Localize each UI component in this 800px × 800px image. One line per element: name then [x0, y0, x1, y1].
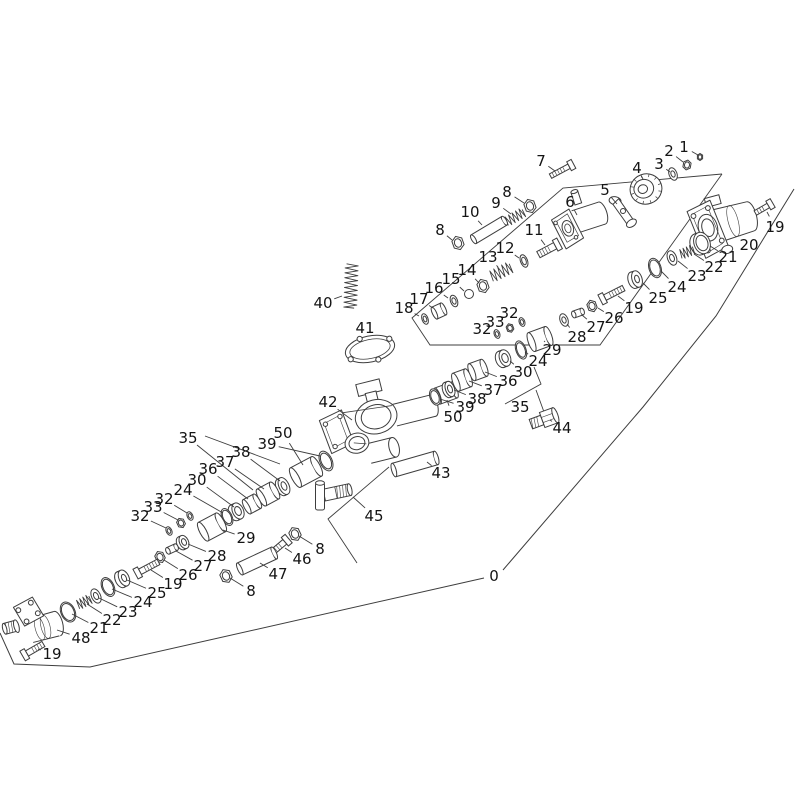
part-nut-1 — [697, 154, 702, 161]
callout-label-25: 25 — [648, 289, 667, 307]
part-oring-16 — [449, 294, 460, 308]
callout-label-44: 44 — [552, 419, 571, 437]
callout-label-46: 46 — [292, 550, 311, 568]
callout-label-13: 13 — [478, 248, 497, 266]
leader-line-23 — [678, 261, 688, 269]
leader-line-14 — [475, 279, 479, 283]
diagram-canvas: 1234567891081112131415161718404142201921… — [0, 0, 800, 800]
part-nut-8b — [451, 235, 466, 252]
callout-label-7: 7 — [536, 152, 546, 170]
leader-line-33 — [164, 513, 178, 520]
part-bolt-19a — [753, 199, 775, 218]
callout-label-10: 10 — [460, 203, 479, 221]
callout-label-2: 2 — [664, 142, 674, 160]
part-seat-14 — [476, 278, 491, 295]
leader-line-32 — [174, 505, 187, 513]
callout-label-19: 19 — [765, 218, 784, 236]
part-bolt-19b — [598, 283, 626, 305]
part-oring-32a — [518, 317, 526, 327]
callout-label-5: 5 — [600, 181, 610, 199]
leader-line-36 — [218, 476, 248, 499]
leader-line-19 — [618, 296, 624, 301]
callout-label-24: 24 — [667, 278, 686, 296]
leader-line-23 — [99, 598, 117, 607]
part-oring-32c — [186, 511, 195, 522]
leader-line-25 — [127, 580, 146, 588]
callout-label-32: 32 — [130, 507, 149, 525]
part-spring-40 — [344, 264, 359, 308]
leader-line-7 — [548, 166, 555, 171]
part-bolt-19c — [133, 557, 161, 579]
leader-line-8 — [515, 197, 524, 203]
callout-label-26: 26 — [604, 309, 623, 327]
exploded-parts-diagram: 1234567891081112131415161718404142201921… — [0, 0, 800, 800]
callout-label-18: 18 — [394, 299, 413, 317]
part-nut-33a — [505, 323, 514, 334]
callout-label-41: 41 — [355, 319, 374, 337]
leader-lines-layer — [38, 151, 769, 649]
leader-line-8 — [230, 578, 243, 586]
callout-label-39: 39 — [257, 435, 276, 453]
callout-label-20: 20 — [739, 236, 758, 254]
part-nut-33b — [176, 517, 187, 529]
leader-line-1 — [692, 151, 698, 155]
part-washer-23a — [665, 249, 679, 266]
part-spring-22L — [75, 594, 92, 609]
callout-label-29: 29 — [236, 529, 255, 547]
callout-label-21: 21 — [89, 619, 108, 637]
part-oring-24b — [513, 339, 529, 360]
part-screw-7 — [548, 159, 576, 180]
callout-label-35: 35 — [178, 429, 197, 447]
leader-line-8 — [299, 536, 312, 544]
callout-label-19: 19 — [42, 645, 61, 663]
leader-line-19 — [767, 212, 769, 216]
leader-line-30 — [207, 487, 234, 507]
callout-label-9: 9 — [491, 194, 501, 212]
callout-label-48: 48 — [71, 629, 90, 647]
callout-label-43: 43 — [431, 464, 450, 482]
part-manifold-48 — [0, 591, 66, 650]
callout-label-12: 12 — [495, 239, 514, 257]
callout-label-40: 40 — [313, 294, 332, 312]
callout-label-8: 8 — [502, 183, 512, 201]
callout-label-50: 50 — [443, 408, 462, 426]
leader-line-22 — [87, 604, 102, 614]
callout-label-27: 27 — [586, 318, 605, 336]
parts-layer — [0, 154, 775, 661]
callout-label-42: 42 — [318, 393, 337, 411]
leader-line-26 — [164, 560, 178, 569]
callout-label-35: 35 — [510, 398, 529, 416]
part-spring-22a — [679, 245, 696, 260]
group-bracket-line — [536, 390, 544, 412]
leader-line-16 — [444, 295, 448, 298]
part-seat-17 — [430, 302, 448, 320]
leader-line-9 — [503, 208, 511, 214]
part-nut-2 — [682, 159, 691, 170]
boundary-line — [0, 578, 484, 667]
part-washer-25L — [112, 568, 132, 589]
leader-line-19 — [151, 570, 163, 578]
callout-label-23: 23 — [687, 267, 706, 285]
part-pin-27a — [571, 307, 586, 318]
part-oring-18 — [420, 313, 429, 325]
callout-label-4: 4 — [632, 159, 642, 177]
callout-label-47: 47 — [268, 565, 287, 583]
part-washer-3 — [667, 167, 679, 182]
leader-line-32 — [519, 319, 520, 320]
leader-line-2 — [676, 157, 683, 162]
part-elbow-45 — [316, 481, 354, 510]
part-oring-32d — [165, 526, 174, 537]
leader-line-45 — [353, 497, 365, 508]
callout-label-1: 1 — [679, 138, 689, 156]
callout-label-45: 45 — [364, 507, 383, 525]
leader-line-12 — [515, 255, 519, 258]
part-pin-27L — [165, 543, 180, 555]
leader-line-50 — [289, 443, 303, 465]
part-ring-30a — [493, 348, 513, 369]
leader-line-28 — [188, 544, 206, 551]
leader-line-32 — [151, 521, 166, 528]
callout-label-19: 19 — [624, 299, 643, 317]
leader-line-24 — [193, 496, 223, 513]
callout-label-37: 37 — [215, 453, 234, 471]
leader-line-8 — [447, 236, 452, 240]
callout-label-15: 15 — [441, 270, 460, 288]
part-nut-8d — [218, 567, 233, 584]
callout-label-22: 22 — [704, 258, 723, 276]
callout-label-28: 28 — [567, 328, 586, 346]
callout-label-24: 24 — [173, 481, 192, 499]
callout-label-0: 0 — [489, 567, 499, 585]
callout-label-8: 8 — [246, 582, 256, 600]
leader-line-10 — [478, 221, 482, 225]
leader-line-26 — [598, 308, 604, 312]
callout-label-3: 3 — [654, 155, 664, 173]
leader-line-46 — [285, 548, 292, 552]
callout-label-8: 8 — [315, 540, 325, 558]
callout-label-32: 32 — [472, 320, 491, 338]
leader-line-11 — [541, 240, 545, 245]
part-valve-11 — [536, 238, 563, 260]
part-ball-15 — [465, 290, 474, 299]
callout-label-6: 6 — [565, 193, 575, 211]
part-oring-12 — [518, 254, 529, 269]
part-nut-26a — [586, 299, 598, 313]
leader-line-40 — [334, 296, 342, 299]
callout-label-11: 11 — [524, 221, 543, 239]
leader-line-39 — [279, 447, 320, 456]
callout-label-8: 8 — [435, 221, 445, 239]
leader-line-27 — [176, 551, 193, 560]
